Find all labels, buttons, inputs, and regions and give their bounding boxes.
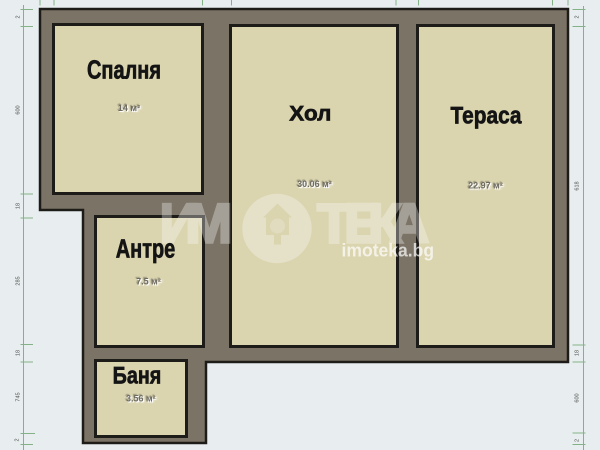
svg-text:618: 618	[575, 181, 581, 190]
svg-text:2: 2	[15, 438, 21, 441]
svg-text:М: М	[186, 192, 233, 255]
svg-text:30.06 м²: 30.06 м²	[297, 179, 332, 189]
svg-text:Хол: Хол	[289, 102, 331, 126]
svg-text:18: 18	[16, 203, 22, 209]
svg-text:600: 600	[16, 105, 22, 114]
svg-text:745: 745	[16, 392, 22, 401]
svg-text:Спалня: Спалня	[87, 55, 161, 85]
svg-text:18: 18	[16, 350, 22, 356]
svg-text:2: 2	[575, 439, 581, 442]
svg-text:22.97 м²: 22.97 м²	[468, 181, 503, 191]
svg-text:285: 285	[16, 276, 22, 285]
svg-text:600: 600	[575, 393, 581, 402]
svg-text:2: 2	[575, 15, 581, 18]
svg-text:imoteka.bg: imoteka.bg	[342, 240, 435, 261]
svg-text:18: 18	[575, 350, 581, 356]
svg-text:Тераса: Тераса	[451, 102, 522, 129]
svg-text:14 м²: 14 м²	[118, 103, 140, 113]
svg-text:2: 2	[16, 15, 22, 18]
svg-text:3.56 м²: 3.56 м²	[126, 394, 156, 404]
svg-text:Антре: Антре	[116, 236, 176, 264]
svg-text:7.5 м²: 7.5 м²	[136, 277, 161, 287]
svg-text:Баня: Баня	[113, 362, 162, 389]
